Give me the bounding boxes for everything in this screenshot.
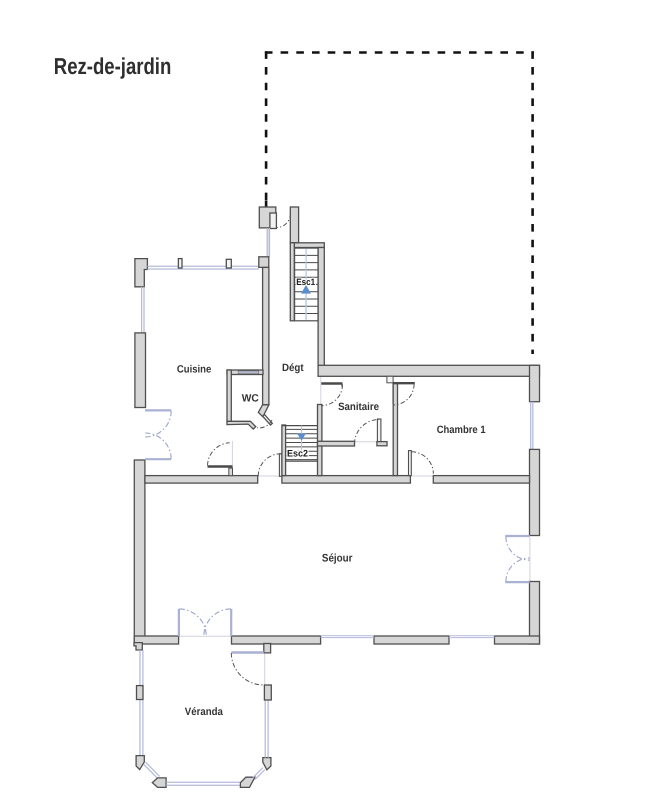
svg-text:Cuisine: Cuisine (177, 364, 211, 376)
svg-text:Dégt: Dégt (282, 362, 304, 374)
svg-text:WC: WC (242, 392, 259, 404)
svg-text:Chambre 1: Chambre 1 (437, 424, 486, 436)
svg-text:Esc2: Esc2 (287, 449, 308, 460)
svg-text:Rez-de-jardin: Rez-de-jardin (54, 53, 172, 79)
svg-text:Véranda: Véranda (185, 706, 224, 718)
svg-text:Séjour: Séjour (322, 552, 353, 564)
svg-text:Esc1: Esc1 (296, 277, 315, 287)
svg-text:Sanitaire: Sanitaire (338, 401, 379, 413)
